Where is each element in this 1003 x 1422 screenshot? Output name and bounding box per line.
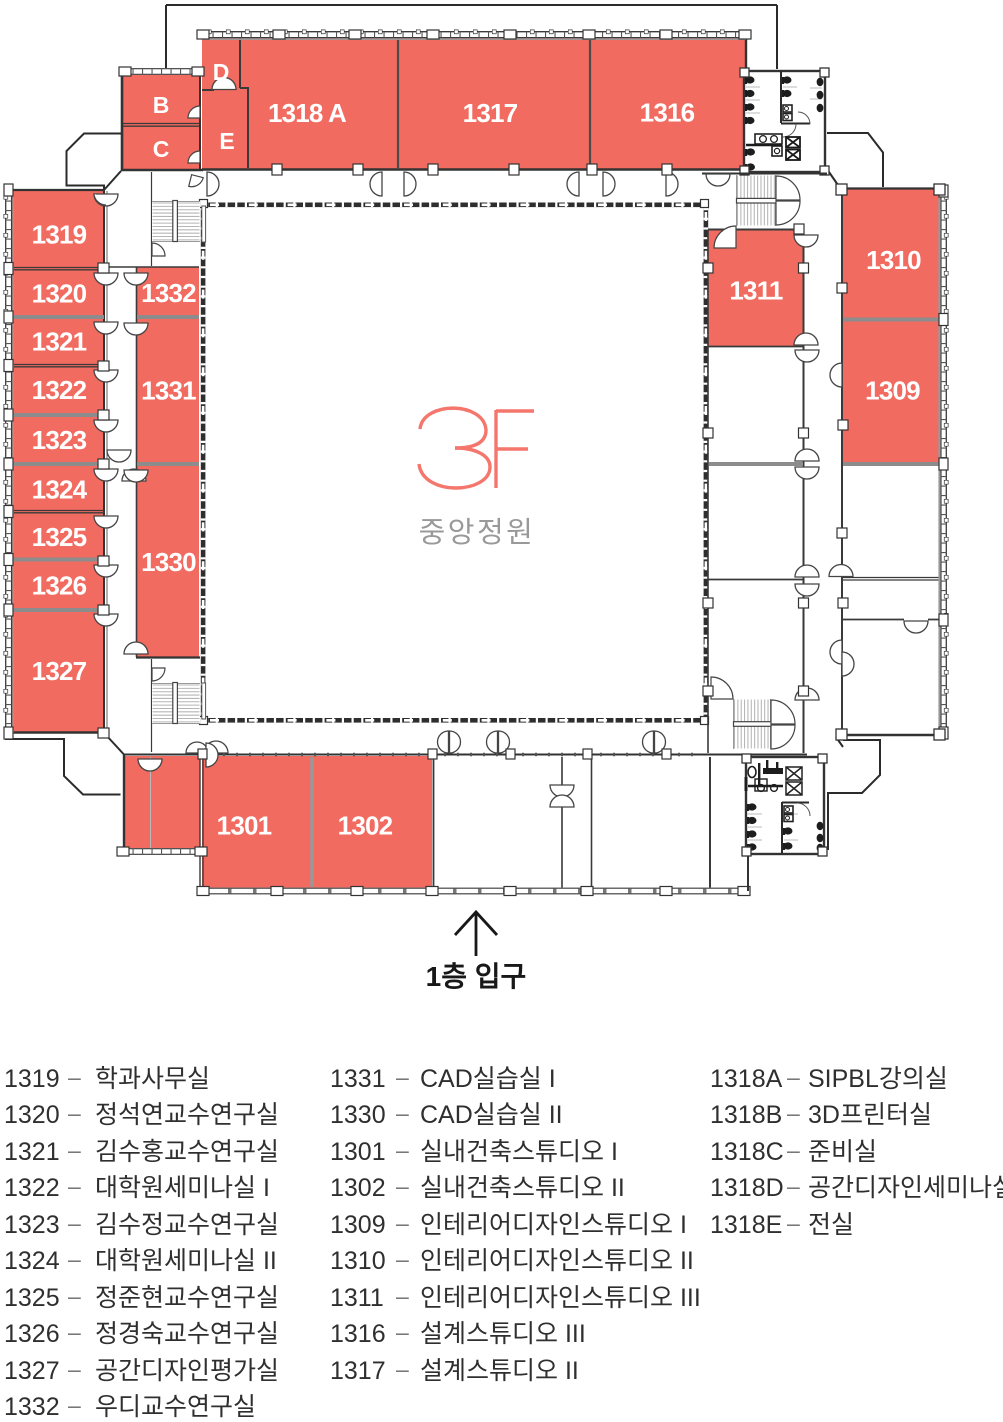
svg-text:3D프린터실: 3D프린터실 <box>808 1101 932 1129</box>
svg-text:중앙정원: 중앙정원 <box>419 517 536 549</box>
svg-text:우디교수연구실: 우디교수연구실 <box>95 1393 256 1421</box>
svg-text:1331: 1331 <box>141 376 196 406</box>
svg-text:1321: 1321 <box>4 1138 60 1166</box>
svg-text:1325: 1325 <box>32 522 87 552</box>
svg-text:–: – <box>68 1173 81 1199</box>
svg-text:CAD실습실 I: CAD실습실 I <box>420 1065 556 1093</box>
svg-text:실내건축스튜디오 I: 실내건축스튜디오 I <box>420 1138 618 1166</box>
svg-text:–: – <box>396 1210 409 1236</box>
svg-text:–: – <box>787 1100 800 1126</box>
svg-text:1318D: 1318D <box>710 1174 784 1202</box>
svg-text:1326: 1326 <box>4 1320 60 1348</box>
svg-text:대학원세미나실 II: 대학원세미나실 II <box>95 1247 277 1275</box>
svg-text:–: – <box>396 1246 409 1272</box>
svg-text:전실: 전실 <box>808 1211 854 1239</box>
svg-text:–: – <box>396 1100 409 1126</box>
svg-text:김수홍교수연구실: 김수홍교수연구실 <box>95 1138 279 1166</box>
svg-text:–: – <box>68 1283 81 1309</box>
svg-text:공간디자인세미나실: 공간디자인세미나실 <box>808 1174 1003 1202</box>
svg-text:1324: 1324 <box>32 475 88 505</box>
svg-text:1323: 1323 <box>32 425 87 455</box>
svg-text:1327: 1327 <box>4 1357 60 1385</box>
svg-text:1층 입구: 1층 입구 <box>426 961 527 992</box>
svg-text:–: – <box>68 1064 81 1090</box>
svg-text:1319: 1319 <box>32 220 87 250</box>
svg-text:1323: 1323 <box>4 1211 60 1239</box>
svg-text:실내건축스튜디오 II: 실내건축스튜디오 II <box>420 1174 625 1202</box>
svg-text:1322: 1322 <box>32 375 87 405</box>
svg-text:–: – <box>396 1319 409 1345</box>
svg-text:–: – <box>68 1137 81 1163</box>
svg-text:1310: 1310 <box>330 1247 386 1275</box>
svg-text:1331: 1331 <box>330 1065 386 1093</box>
svg-text:김수정교수연구실: 김수정교수연구실 <box>95 1211 279 1239</box>
svg-text:–: – <box>68 1356 81 1382</box>
svg-text:인테리어디자인스튜디오 I: 인테리어디자인스튜디오 I <box>420 1211 687 1239</box>
svg-text:인테리어디자인스튜디오 III: 인테리어디자인스튜디오 III <box>420 1284 701 1312</box>
svg-text:1318B: 1318B <box>710 1101 782 1129</box>
svg-text:1309: 1309 <box>865 376 920 406</box>
svg-text:1318C: 1318C <box>710 1138 784 1166</box>
svg-text:정준현교수연구실: 정준현교수연구실 <box>95 1284 279 1312</box>
svg-text:1318A: 1318A <box>710 1065 783 1093</box>
svg-text:1318E: 1318E <box>710 1211 782 1239</box>
svg-text:1316: 1316 <box>640 98 695 128</box>
svg-text:1324: 1324 <box>4 1247 60 1275</box>
svg-text:–: – <box>396 1283 409 1309</box>
svg-text:1301: 1301 <box>330 1138 386 1166</box>
svg-text:–: – <box>787 1064 800 1090</box>
svg-text:–: – <box>396 1356 409 1382</box>
svg-text:CAD실습실 II: CAD실습실 II <box>420 1101 563 1129</box>
svg-text:1317: 1317 <box>330 1357 386 1385</box>
svg-text:C: C <box>153 136 170 162</box>
svg-text:공간디자인평가실: 공간디자인평가실 <box>95 1357 279 1385</box>
svg-text:1321: 1321 <box>32 327 87 357</box>
svg-text:1332: 1332 <box>4 1393 60 1421</box>
svg-text:–: – <box>787 1137 800 1163</box>
svg-text:1332: 1332 <box>141 278 196 308</box>
svg-text:–: – <box>68 1392 81 1418</box>
svg-text:E: E <box>219 128 234 154</box>
svg-text:1302: 1302 <box>330 1174 386 1202</box>
svg-text:1318 A: 1318 A <box>268 98 347 128</box>
svg-text:1317: 1317 <box>463 98 518 128</box>
svg-text:준비실: 준비실 <box>808 1138 877 1166</box>
svg-text:1319: 1319 <box>4 1065 60 1093</box>
svg-text:1325: 1325 <box>4 1284 60 1312</box>
svg-text:설계스튜디오 III: 설계스튜디오 III <box>420 1320 586 1348</box>
svg-text:1322: 1322 <box>4 1174 60 1202</box>
svg-text:–: – <box>396 1137 409 1163</box>
svg-text:1302: 1302 <box>338 811 393 841</box>
svg-text:B: B <box>153 92 170 118</box>
svg-text:설계스튜디오 II: 설계스튜디오 II <box>420 1357 579 1385</box>
svg-text:–: – <box>68 1246 81 1272</box>
svg-text:학과사무실: 학과사무실 <box>95 1065 210 1093</box>
svg-text:D: D <box>213 59 230 85</box>
svg-text:정석연교수연구실: 정석연교수연구실 <box>95 1101 279 1129</box>
svg-text:1310: 1310 <box>866 245 921 275</box>
svg-text:–: – <box>68 1319 81 1345</box>
svg-text:–: – <box>396 1064 409 1090</box>
svg-text:1309: 1309 <box>330 1211 386 1239</box>
svg-text:–: – <box>396 1173 409 1199</box>
svg-text:1330: 1330 <box>141 547 196 577</box>
svg-text:1320: 1320 <box>32 279 87 309</box>
svg-text:1311: 1311 <box>330 1284 384 1312</box>
svg-text:1330: 1330 <box>330 1101 386 1129</box>
svg-text:정경숙교수연구실: 정경숙교수연구실 <box>95 1320 279 1348</box>
svg-text:1327: 1327 <box>32 656 87 686</box>
svg-text:1320: 1320 <box>4 1101 60 1129</box>
svg-text:1311: 1311 <box>729 276 783 306</box>
svg-text:인테리어디자인스튜디오 II: 인테리어디자인스튜디오 II <box>420 1247 694 1275</box>
svg-text:1326: 1326 <box>32 571 87 601</box>
svg-text:–: – <box>68 1100 81 1126</box>
svg-text:–: – <box>787 1210 800 1236</box>
svg-text:–: – <box>68 1210 81 1236</box>
svg-text:대학원세미나실 I: 대학원세미나실 I <box>95 1174 270 1202</box>
svg-text:1301: 1301 <box>217 811 272 841</box>
svg-text:1316: 1316 <box>330 1320 386 1348</box>
svg-text:–: – <box>787 1173 800 1199</box>
svg-text:SIPBL강의실: SIPBL강의실 <box>808 1065 948 1093</box>
